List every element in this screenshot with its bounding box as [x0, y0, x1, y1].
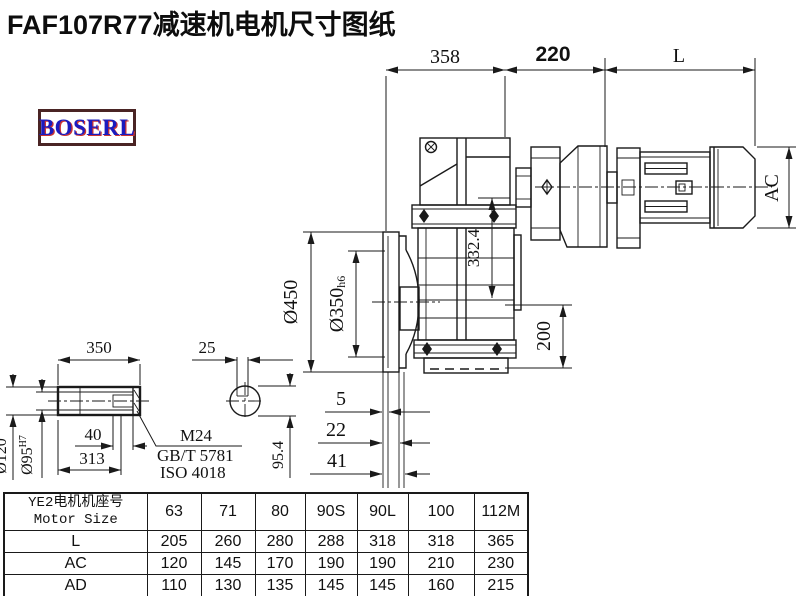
table-row-ad: AD 110 130 135 145 145 160 215	[4, 575, 528, 596]
dim-base-height-label: 200	[533, 321, 555, 351]
dim-key-width: 25	[199, 338, 216, 357]
col-100: 100	[408, 493, 474, 531]
cell: 190	[357, 553, 408, 575]
note-bolt: M24	[180, 426, 213, 445]
motor-adapter	[516, 146, 617, 247]
table-row-l: L 205 260 280 288 318 318 365	[4, 531, 528, 553]
dim-gearbox-width: 358	[430, 46, 460, 68]
cell: 145	[357, 575, 408, 596]
cell: 215	[474, 575, 528, 596]
cell: 210	[408, 553, 474, 575]
cell: 170	[255, 553, 305, 575]
cell: 365	[474, 531, 528, 553]
dim-spigot: Ø350h6	[326, 276, 348, 332]
col-112m: 112M	[474, 493, 528, 531]
dim-ac: AC	[757, 147, 796, 228]
dims-flange-offsets: 5 22 41	[310, 388, 430, 474]
note-std-iso: ISO 4018	[160, 463, 226, 482]
dim-key-length: 40	[85, 425, 102, 444]
cell: 318	[408, 531, 474, 553]
dim-offset-a: 5	[336, 388, 346, 410]
dim-motor-diameter: AC	[761, 174, 783, 202]
row-label: AC	[4, 553, 147, 575]
output-flange	[372, 232, 440, 488]
dim-insert-depth: 313	[79, 449, 105, 468]
cell: 280	[255, 531, 305, 553]
top-dimensions: 358 220 L	[386, 43, 755, 231]
cell: 230	[474, 553, 528, 575]
col-90l: 90L	[357, 493, 408, 531]
cell: 190	[305, 553, 357, 575]
dim-key-height: 95.4	[270, 441, 287, 469]
table-row-ac: AC 120 145 170 190 190 210 230	[4, 553, 528, 575]
cell: 260	[201, 531, 255, 553]
brand-logo-text: BOSERL	[39, 115, 135, 141]
brand-logo: BOSERL	[38, 109, 136, 146]
dim-flange-od: Ø450	[280, 280, 302, 324]
shaft-detail: 350 Ø120 Ø95H7	[0, 338, 296, 482]
cell: 318	[357, 531, 408, 553]
cell: 110	[147, 575, 201, 596]
cell: 145	[305, 575, 357, 596]
col-80: 80	[255, 493, 305, 531]
col-63: 63	[147, 493, 201, 531]
col-90s: 90S	[305, 493, 357, 531]
cell: 288	[305, 531, 357, 553]
cell: 130	[201, 575, 255, 596]
col-71: 71	[201, 493, 255, 531]
cell: 160	[408, 575, 474, 596]
dim-center-height: 332.4	[464, 198, 510, 298]
cell: 135	[255, 575, 305, 596]
table-header-cn: YE2电机机座号	[5, 495, 147, 513]
cell: 120	[147, 553, 201, 575]
page: 358 220 L	[0, 0, 800, 596]
dim-offset-c: 41	[327, 450, 347, 472]
dim-shaft-od: Ø120	[0, 438, 10, 474]
motor	[535, 147, 772, 248]
dim-motor-length: L	[673, 45, 685, 67]
dim-center-height-label: 332.4	[464, 228, 483, 267]
dim-shaft-length: 350	[86, 338, 112, 357]
table-header-en: Motor Size	[5, 512, 147, 530]
cell: 145	[201, 553, 255, 575]
row-label: AD	[4, 575, 147, 596]
cell: 205	[147, 531, 201, 553]
table-header-row: YE2电机机座号 Motor Size 63 71 80 90S 90L 100…	[4, 493, 528, 531]
row-label: L	[4, 531, 147, 553]
dim-offset-b: 22	[326, 419, 346, 441]
dim-adapter-width: 220	[535, 43, 570, 66]
table-header-cell: YE2电机机座号 Motor Size	[4, 493, 147, 531]
dim-shaft-bore: Ø95H7	[18, 435, 36, 475]
dims-flange: Ø450 Ø350h6	[280, 232, 385, 372]
motor-size-table: YE2电机机座号 Motor Size 63 71 80 90S 90L 100…	[3, 492, 529, 596]
page-title: FAF107R77减速机电机尺寸图纸	[7, 3, 396, 42]
